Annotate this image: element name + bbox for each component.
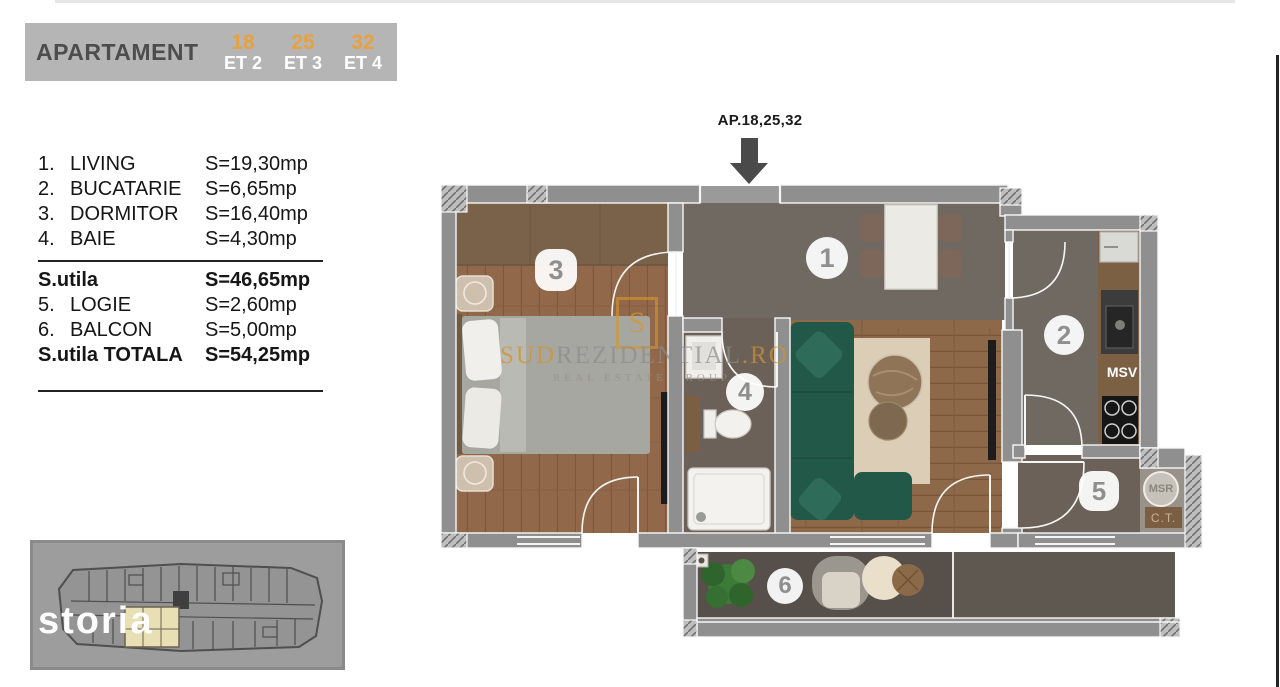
- room-name: LOGIE: [70, 294, 205, 317]
- msr-label: MSR: [1143, 471, 1179, 507]
- legend-row-subtotal: S.utila S=46,65mp: [38, 268, 330, 293]
- entrance-arrow-head: [730, 163, 768, 184]
- room-area: S=6,65mp: [205, 178, 330, 201]
- total-area: S=54,25mp: [205, 344, 330, 367]
- brand-sud: SUD: [500, 342, 556, 369]
- header-title: APARTAMENT: [25, 39, 217, 66]
- room-area: S=5,00mp: [205, 319, 330, 342]
- room-area: S=19,30mp: [205, 153, 330, 176]
- storia-logo: storia: [38, 600, 153, 643]
- tagline-text: REAL ESTATE GROUP: [553, 372, 731, 384]
- entrance-arrow-icon: [741, 138, 758, 163]
- row-number: 3.: [38, 203, 70, 226]
- total-label: S.utila TOTALA: [38, 344, 205, 367]
- ct-label: C.T.: [1145, 507, 1182, 528]
- room-badge-kitchen: 2: [1044, 315, 1084, 355]
- toilet: [715, 410, 751, 438]
- dining-table: [885, 205, 937, 289]
- kitchen-furniture: [1098, 230, 1140, 445]
- legend-row-bucatarie: 2. BUCATARIE S=6,65mp: [38, 177, 330, 202]
- room-name: BAIE: [70, 228, 205, 251]
- legend-row-living: 1. LIVING S=19,30mp: [38, 152, 330, 177]
- brand-rezidential: REZIDENTIAL: [556, 342, 742, 369]
- row-number: 2.: [38, 178, 70, 201]
- unit-floor: ET 2: [217, 54, 269, 74]
- room-area: S=16,40mp: [205, 203, 330, 226]
- room-legend: 1. LIVING S=19,30mp 2. BUCATARIE S=6,65m…: [38, 152, 330, 398]
- room-badge-balcony: 6: [767, 568, 803, 604]
- coffee-table: [868, 355, 922, 409]
- legend-row-baie: 4. BAIE S=4,30mp: [38, 227, 330, 252]
- room-name: BALCON: [70, 319, 205, 342]
- room-area: S=4,30mp: [205, 228, 330, 251]
- watermark-brand: SUDREZIDENTIAL.RO: [500, 342, 780, 370]
- unit-25: 25 ET 3: [277, 31, 329, 74]
- subtotal-label: S.utila: [38, 269, 205, 292]
- watermark-tagline: REAL ESTATE GROUP: [545, 372, 735, 384]
- plant: [701, 559, 755, 608]
- legend-row-logie: 5. LOGIE S=2,60mp: [38, 293, 330, 318]
- room-badge-bedroom: 3: [535, 249, 577, 291]
- image-right-border: [1276, 55, 1279, 687]
- row-number: 6.: [38, 319, 70, 342]
- legend-row-total: S.utila TOTALA S=54,25mp: [38, 343, 330, 368]
- unit-floor: ET 4: [337, 54, 389, 74]
- unit-number: 18: [217, 31, 269, 54]
- unit-32: 32 ET 4: [337, 31, 389, 74]
- bathroom-cabinet: [686, 396, 700, 452]
- room-name: BUCATARIE: [70, 178, 205, 201]
- row-number: 5.: [38, 294, 70, 317]
- room-name: LIVING: [70, 153, 205, 176]
- legend-row-balcon: 6. BALCON S=5,00mp: [38, 318, 330, 343]
- apartment-header: APARTAMENT 18 ET 2 25 ET 3 32 ET 4: [25, 23, 397, 81]
- floorplan-image: APARTAMENT 18 ET 2 25 ET 3 32 ET 4 1. LI…: [0, 0, 1280, 687]
- room-badge-loggia: 5: [1079, 471, 1119, 511]
- row-number: 4.: [38, 228, 70, 251]
- legend-divider: [38, 260, 323, 262]
- msv-label: MSV: [1102, 364, 1142, 380]
- entrance-label: AP.18,25,32: [690, 112, 830, 129]
- room-area: S=2,60mp: [205, 294, 330, 317]
- legend-divider: [38, 390, 323, 392]
- row-number: 1.: [38, 153, 70, 176]
- unit-number: 32: [337, 31, 389, 54]
- room-name: DORMITOR: [70, 203, 205, 226]
- brand-ro: .RO: [742, 342, 789, 369]
- room-badge-living: 1: [806, 237, 848, 279]
- unit-floor: ET 3: [277, 54, 329, 74]
- living-tv: [988, 340, 996, 460]
- unit-18: 18 ET 2: [217, 31, 269, 74]
- legend-row-dormitor: 3. DORMITOR S=16,40mp: [38, 202, 330, 227]
- subtotal-area: S=46,65mp: [205, 269, 330, 292]
- unit-number: 25: [277, 31, 329, 54]
